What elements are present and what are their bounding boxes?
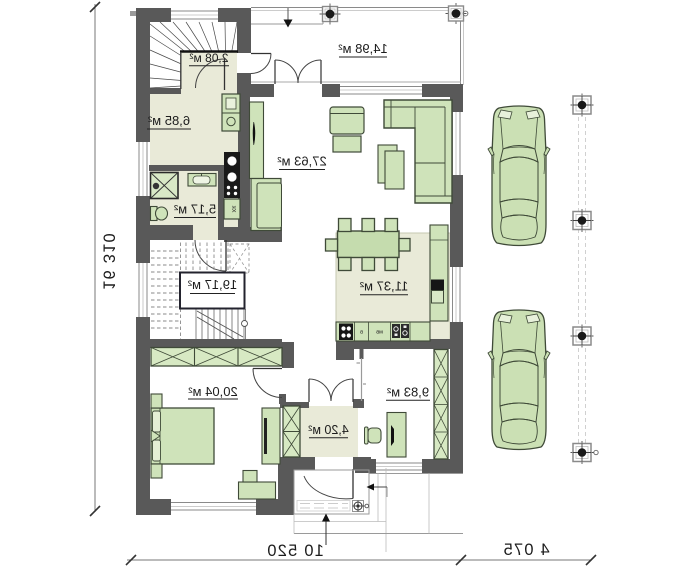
svg-text:11,37 м²: 11,37 м² [359,279,408,294]
svg-text:6,85 м²: 6,85 м² [147,113,190,128]
svg-text:5,17 м²: 5,17 м² [173,202,216,217]
svg-text:2,08 м²: 2,08 м² [190,51,229,65]
svg-text:20,04 м²: 20,04 м² [188,384,238,399]
svg-text:4 075: 4 075 [502,541,549,559]
svg-text:в: в [360,330,363,336]
svg-text:ХК: ХК [230,205,236,213]
svg-text:19,17 м²: 19,17 м² [187,277,237,292]
svg-text:14,98 м²: 14,98 м² [338,41,388,56]
svg-text:10 520: 10 520 [266,542,324,560]
svg-text:27,63 м²: 27,63 м² [277,154,327,169]
svg-text:4,20 м²: 4,20 м² [308,423,349,437]
svg-text:9,83 м²: 9,83 м² [386,385,429,400]
svg-text:мв: мв [376,330,383,336]
svg-text:16 310: 16 310 [100,232,118,290]
